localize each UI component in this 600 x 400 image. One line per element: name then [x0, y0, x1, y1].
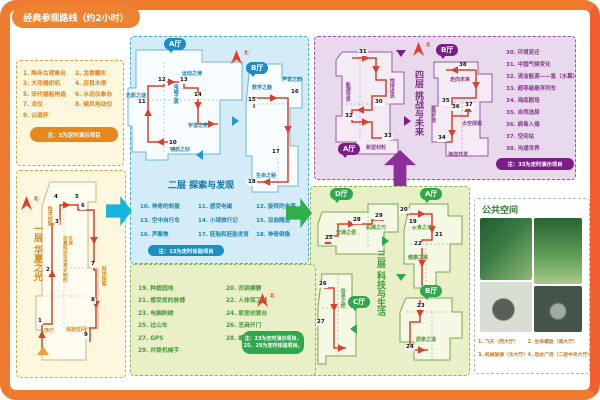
hall-d-bubble: D厅: [330, 188, 353, 200]
floor4-title: 四层 挑战与未来: [412, 70, 425, 170]
list-item: 17. 胚胎和胚胎发育: [198, 232, 256, 238]
area-label-xuting: 序厅: [44, 329, 54, 335]
list-item: 33. 超导磁悬浮列车: [506, 86, 578, 92]
route-stop: 15: [247, 98, 257, 104]
list-item: 9. 公道杯: [23, 113, 75, 119]
list-item: 4. 应县木塔: [75, 81, 117, 87]
route-stop: 2: [45, 268, 51, 274]
route-stop: 18: [247, 180, 257, 186]
hall-a-label: A厅: [425, 190, 437, 198]
caption-item: 4. 恐龙广场（二层中央大厅）: [528, 351, 586, 358]
route-connector-icon: [396, 50, 406, 57]
north-arrow-icon: 北: [412, 42, 431, 57]
area-label-jishu: 技术创新: [46, 206, 52, 238]
area-label-jiaotong: 交通之便: [336, 231, 356, 237]
floor2-title: 二层 探索与发现: [168, 178, 234, 191]
route-stop: 35: [441, 99, 451, 105]
list-item: 2. 龙骨翻车: [75, 71, 117, 77]
floor1-note-badge: 注：3为定时演示项目: [30, 127, 118, 142]
route-stop: 27: [316, 320, 326, 326]
area-label-shengyin: 声音之韵: [282, 78, 302, 84]
area-label-kexue: 科学探索: [100, 266, 106, 296]
route-stop: 20: [399, 208, 409, 214]
floor2-note-badge: 注：13为定时体验项目: [148, 245, 224, 256]
route-stop: 3: [54, 220, 60, 226]
route-stop: 32: [344, 114, 354, 120]
area-label-zouxiang: 走向未来: [450, 78, 470, 84]
hall-b-bubble: B厅: [246, 62, 268, 74]
list-item: 37. 空间站: [506, 134, 578, 140]
poster-canvas: 经典参观路线（约2小时） 1. 陶寺古观象台 2. 龙骨翻车 3. 大花楼织机 …: [0, 0, 600, 400]
area-label-jiaoliu: 华夏科技与世界文明的交流: [62, 236, 76, 286]
list-item: 32. 清洁能源——氢（水幕）: [506, 74, 578, 80]
route-stop: 28: [352, 218, 362, 224]
route-stop: 11: [137, 100, 147, 106]
hall-a-label: A厅: [343, 145, 355, 153]
hall-d-label: D厅: [335, 190, 348, 198]
route-stop: 7: [90, 262, 96, 268]
route-stop: 16: [290, 90, 300, 96]
list-item: 27. GPS: [138, 336, 226, 342]
list-item: 6. 水运仪象台: [75, 92, 117, 98]
route-connector-icon: [382, 236, 389, 246]
list-item: 5. 宋代福船构造: [23, 92, 75, 98]
route-stop: 12: [157, 78, 167, 84]
list-item: 25. 过山车: [138, 323, 226, 329]
hall-a-bubble: A厅: [164, 38, 186, 50]
floor3-title: 三层 科技与生活: [374, 250, 387, 350]
route-stop: 9: [83, 333, 89, 339]
list-item: 3. 大花楼织机: [23, 81, 75, 87]
floor3-hall-a-floorplan: 20 19 21 22 衣食之本 健康之路: [396, 200, 468, 292]
floor2-note-text: 注：13为定时体验项目: [158, 247, 213, 255]
route-stop: 24: [405, 345, 415, 351]
list-item: 23. 电脑刺绣: [138, 311, 226, 317]
route-stop: 10: [168, 141, 178, 147]
list-item: 26. 芝麻开门: [226, 323, 302, 329]
area-label-yuzhou: 宇宙之奇: [188, 124, 208, 130]
list-item: 18. 神奇倒像: [256, 232, 302, 238]
floor4-note-badge: 注：33为定时演示项目: [496, 158, 574, 170]
list-item: 30. 环境变迁: [506, 50, 578, 56]
list-item: 35. 自然选择: [506, 110, 578, 116]
floor1-note-text: 注：3为定时演示项目: [47, 131, 100, 139]
photo-dinosaur-skeleton: [480, 282, 532, 332]
route-stop: 23: [416, 304, 426, 310]
photo-dna-staircase: [534, 218, 582, 284]
route-connector-icon: [404, 116, 411, 126]
hall-a-bubble: A厅: [338, 143, 360, 155]
list-item: 1. 陶寺古观象台: [23, 71, 75, 77]
public-space-title: 公共空间: [482, 203, 518, 216]
list-item: 38. 沟通世界: [506, 146, 578, 152]
route-stop: 26: [318, 282, 328, 288]
area-label-jiankang: 健康之路: [408, 256, 428, 262]
list-item: 7. 浑仪: [23, 102, 75, 108]
area-label-dianci: 电磁之奥: [172, 84, 178, 112]
list-item: 19. 种植园地: [138, 286, 226, 292]
hall-b-bubble: B厅: [436, 44, 458, 56]
floor3-hall-c-floorplan: 26 27 信息之桥: [312, 268, 362, 370]
route-stop: 38: [458, 63, 468, 69]
floor3-hall-b-floorplan: 23 24 居家之道: [394, 294, 468, 366]
area-label-taikong: 太空探索: [462, 122, 482, 128]
area-label-nengyuan: 能源世界: [344, 82, 350, 112]
floor2-exhibit-list: 10. 神奇的斜屋 11. 感受电磁 12. 旋转的金蛋 13. 空中自行车 1…: [140, 204, 302, 238]
list-item: 36. 病毒入侵: [506, 122, 578, 128]
route-stop: 33: [383, 134, 393, 140]
route-stop: 25: [324, 236, 334, 242]
floor3-hall-d-floorplan: 25 28 29 交通之便 机械之巧: [312, 198, 404, 270]
floor1-title: 一层 华夏之光: [31, 224, 44, 328]
poster-title: 经典参观路线（约2小时）: [12, 6, 140, 28]
poster-title-text: 经典参观路线（约2小时）: [23, 11, 128, 24]
route-stop: 22: [413, 242, 423, 248]
floor4-note-text: 注：33为定时演示项目: [507, 160, 562, 168]
hall-b-label: B厅: [251, 64, 263, 72]
list-item: 31. 中国气候变化: [506, 62, 578, 68]
route-stop: 30: [374, 100, 384, 106]
hall-c-bubble: C厅: [348, 296, 370, 308]
caption-item: 3. 机械旋律（东大厅）: [478, 351, 528, 358]
route-stop: 37: [464, 103, 474, 109]
route-stop: 5: [74, 195, 80, 201]
hall-a-bubble: A厅: [420, 188, 442, 200]
area-label-jujia: 居家之道: [416, 338, 436, 344]
area-label-shuxue: 数学之魅: [252, 86, 272, 92]
photo-flying-sculpture: [480, 218, 532, 280]
route-stop: 34: [437, 136, 447, 142]
area-label-jiyin: 基因生命: [430, 106, 435, 132]
public-space-captions: 1. 飞天（西大厅） 2. 生命螺旋（南大厅） 3. 机械旋律（东大厅） 4. …: [478, 338, 586, 358]
north-arrow-icon: 北: [256, 293, 275, 308]
floor3d-plan-drawing: [312, 198, 404, 270]
route-stop: 36: [451, 105, 461, 111]
hall-a-label: A厅: [169, 40, 181, 48]
list-item: 8. 候风地动仪: [75, 102, 117, 108]
route-stop: 29: [374, 214, 384, 220]
caption-item: 2. 生命螺旋（南大厅）: [528, 338, 586, 345]
list-item: 29. 并联机械手: [138, 348, 226, 354]
photo-relief-wall: [534, 286, 582, 332]
north-arrow-icon: 北: [20, 196, 39, 211]
route-stop: 14: [193, 93, 203, 99]
route-connector-icon: [232, 116, 239, 126]
area-label-haiyang: 海洋开发: [448, 153, 468, 159]
area-label-jixie: 机械之巧: [366, 226, 386, 232]
floor3a-plan-drawing: [396, 200, 468, 292]
area-label-diqiu: 地球述说: [388, 78, 394, 108]
list-item: 34. 海底剧场: [506, 98, 578, 104]
route-connector-icon: [396, 274, 406, 281]
list-item: 10. 神奇的斜屋: [140, 204, 198, 210]
list-item: 11. 感受电磁: [198, 204, 256, 210]
route-stop: 17: [271, 150, 281, 156]
area-label-wuzhi: 物质之妙: [170, 148, 190, 154]
route-stop: 6: [80, 204, 86, 210]
floor1-exhibit-list: 1. 陶寺古观象台 2. 龙骨翻车 3. 大花楼织机 4. 应县木塔 5. 宋代…: [23, 71, 117, 119]
hall-b-bubble: B厅: [420, 285, 442, 297]
route-stop: 4: [53, 195, 59, 201]
area-label-shengming: 生命之秘: [256, 174, 276, 180]
route-stop: 19: [408, 220, 418, 226]
floor3b-plan-drawing: [394, 294, 468, 366]
hall-c-label: C厅: [353, 298, 365, 306]
area-label-yishi: 衣食之本: [412, 226, 432, 232]
floor3-note-badge: 注：23为定时演示项目， 25、29为定时体验项目。: [242, 331, 304, 354]
list-item: 14. 小球旅行记: [198, 218, 256, 224]
entrance-arrow-icon: [37, 346, 49, 355]
caption-item: 1. 飞天（西大厅）: [478, 338, 528, 345]
route-stop: 31: [358, 50, 368, 56]
floor4-exhibit-list: 30. 环境变迁 31. 中国气候变化 32. 清洁能源——氢（水幕） 33. …: [506, 50, 572, 152]
list-item: 21. 感受您的脉搏: [138, 298, 226, 304]
route-connector-icon: [350, 324, 357, 334]
route-stop: 21: [434, 233, 444, 239]
list-item: 24. 家居创意台: [226, 311, 302, 317]
hall-b-label: B厅: [425, 287, 437, 295]
area-label-xinxi: 信息之桥: [339, 288, 345, 318]
floor4-hall-b-floorplan: 38 35 36 37 34 走向未来 基因生命 太空探索 海洋开发: [422, 54, 502, 166]
route-stop: 13: [179, 78, 189, 84]
north-arrow-icon: 北: [230, 50, 249, 65]
list-item: 13. 空中自行车: [140, 218, 198, 224]
list-item: 16. 声聚焦: [140, 232, 198, 238]
floor3-note-line2: 25、29为定时体验项目。: [244, 343, 303, 350]
floor2-hall-b-floorplan: 15 16 17 18 数学之魅 声音之韵 生命之秘: [240, 56, 308, 198]
list-item: 20. 农耕撷要: [226, 286, 302, 292]
route-connector-icon: [196, 150, 203, 160]
route-stop: 8: [90, 298, 96, 304]
hall-b-label: B厅: [441, 46, 453, 54]
area-label-xinxing: 新型材料: [366, 146, 386, 152]
